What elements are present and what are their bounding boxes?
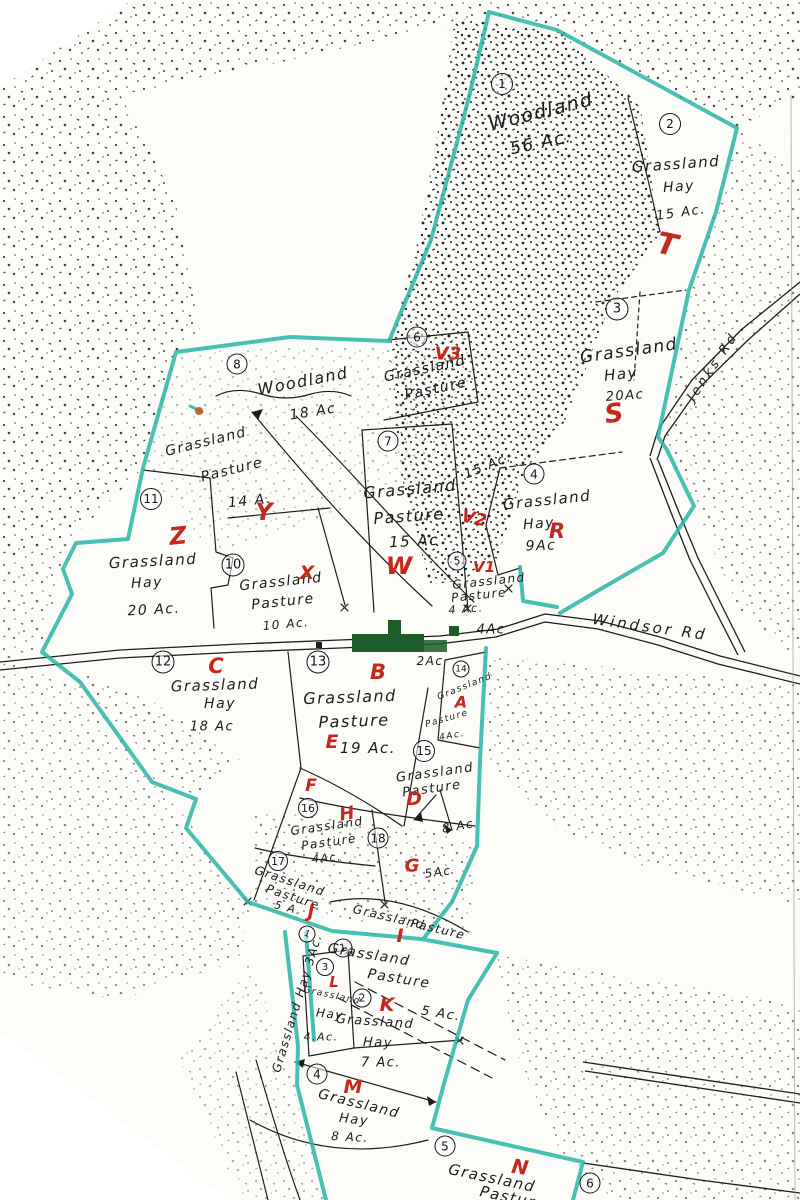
region-letter: C <box>208 654 223 678</box>
region-letter: V3 <box>435 344 461 365</box>
region-label: Grassland <box>303 686 397 708</box>
region-label: Hay <box>204 696 236 712</box>
region-letter: J <box>308 902 315 923</box>
region-label: Grassland <box>363 475 458 502</box>
region-label: 56 Ac. <box>508 127 573 160</box>
region-label: 18 Ac <box>289 400 338 423</box>
region-label: Pasture <box>409 916 467 942</box>
region-number-circle: 6 <box>580 1173 601 1194</box>
region-number-circle: 3 <box>606 298 629 321</box>
region-letter: B <box>370 660 386 684</box>
map-labels: 1Woodland56 Ac.2GrasslandHay15 Ac.T3Gras… <box>0 0 800 1200</box>
region-label: 5 Ac. <box>420 1003 462 1024</box>
region-label: 4Ac. <box>438 729 465 743</box>
region-label: Pasture <box>199 455 265 486</box>
road-label: Windsor Rd <box>591 610 708 644</box>
region-number-circle: 5 <box>435 1136 456 1157</box>
region-letter: V1 <box>473 558 495 576</box>
region-label: Hay <box>663 178 696 196</box>
region-label: Grassland Hay 3Ac. <box>269 932 325 1074</box>
region-label: 4Ac. <box>311 850 342 866</box>
region-letter: F <box>305 776 317 796</box>
region-label: 10 Ac. <box>262 615 310 633</box>
region-number-circle: 12 <box>152 651 175 674</box>
region-label: Hay <box>131 574 164 592</box>
region-letter: D <box>406 788 422 810</box>
acreage-label: 15 Ac. <box>462 450 514 483</box>
region-number-circle: 4 <box>307 1064 328 1085</box>
region-letter: G <box>405 856 420 877</box>
region-letter: A <box>455 693 467 712</box>
region-label: Hay <box>603 363 639 384</box>
region-label: 15 Ac <box>389 531 440 552</box>
region-label: Pasture <box>318 710 390 731</box>
region-letter: K <box>380 994 395 1016</box>
region-letter: X <box>300 562 315 584</box>
region-letter: H <box>338 802 356 825</box>
road-label: Jenks Rd <box>684 330 741 405</box>
region-label: Hay <box>315 1006 344 1023</box>
region-label: Woodland <box>256 363 350 399</box>
region-label: 8 Ac <box>441 816 475 835</box>
region-letter: L <box>329 973 339 991</box>
region-label: 20 Ac. <box>127 601 181 620</box>
region-label: Grassland <box>502 486 592 513</box>
region-number-circle: 2 <box>659 113 681 135</box>
region-number-circle: 16 <box>298 798 318 818</box>
region-label: Grassland <box>579 334 679 368</box>
region-letter: I <box>396 925 403 947</box>
region-label: 4 Ac. <box>448 601 484 616</box>
region-number-circle: 7 <box>378 431 399 452</box>
region-number-circle: 13 <box>307 651 330 674</box>
region-number-circle: 18 <box>368 828 389 849</box>
region-label: 18 Ac <box>190 720 234 735</box>
region-label: Grassland <box>631 152 721 176</box>
region-letter: Z <box>168 521 188 551</box>
region-number-circle: 6 <box>407 327 428 348</box>
region-letter: Y <box>255 498 272 526</box>
region-label: Grassland <box>164 424 249 460</box>
region-label: 5Ac <box>424 863 453 881</box>
region-number-circle: 1 <box>491 73 513 95</box>
region-number-circle: 5 <box>448 552 467 571</box>
region-label: Hay <box>338 1111 369 1129</box>
region-letter: S <box>603 398 626 430</box>
region-letter: V2 <box>460 507 489 532</box>
region-number-circle: 8 <box>227 354 248 375</box>
region-label: Pasture <box>373 504 445 528</box>
region-number-circle: 10 <box>222 554 245 577</box>
region-number-circle: 15 <box>413 740 435 762</box>
region-label: Hay <box>363 1035 393 1051</box>
region-label: 19 Ac. <box>340 739 396 757</box>
region-label: Pasture <box>366 966 431 992</box>
region-label: 15 Ac. <box>655 202 706 224</box>
region-letter: T <box>653 226 680 264</box>
region-label: Pasture <box>251 591 316 614</box>
region-letter: M <box>344 1076 363 1098</box>
region-label: Grassland <box>335 1012 414 1032</box>
scanned-farm-map: 1Woodland56 Ac.2GrasslandHay15 Ac.T3Gras… <box>0 0 800 1200</box>
region-label: 8 Ac. <box>331 1129 369 1145</box>
region-label: Grassland <box>108 550 197 573</box>
region-letter: E <box>326 731 339 753</box>
region-number-circle: 14 <box>453 661 470 678</box>
region-letter: R <box>549 519 565 543</box>
acreage-label: 2Ac <box>417 654 444 668</box>
region-label: 4.Ac. <box>303 1031 338 1044</box>
acreage-label: 4Ac <box>477 623 506 638</box>
region-number-circle: 11 <box>140 488 162 510</box>
region-number-circle: 4 <box>524 464 545 485</box>
region-label: 7 Ac. <box>361 1056 401 1071</box>
region-letter: N <box>510 1154 530 1180</box>
region-label: Woodland <box>486 88 595 135</box>
region-letter: W <box>386 552 412 580</box>
